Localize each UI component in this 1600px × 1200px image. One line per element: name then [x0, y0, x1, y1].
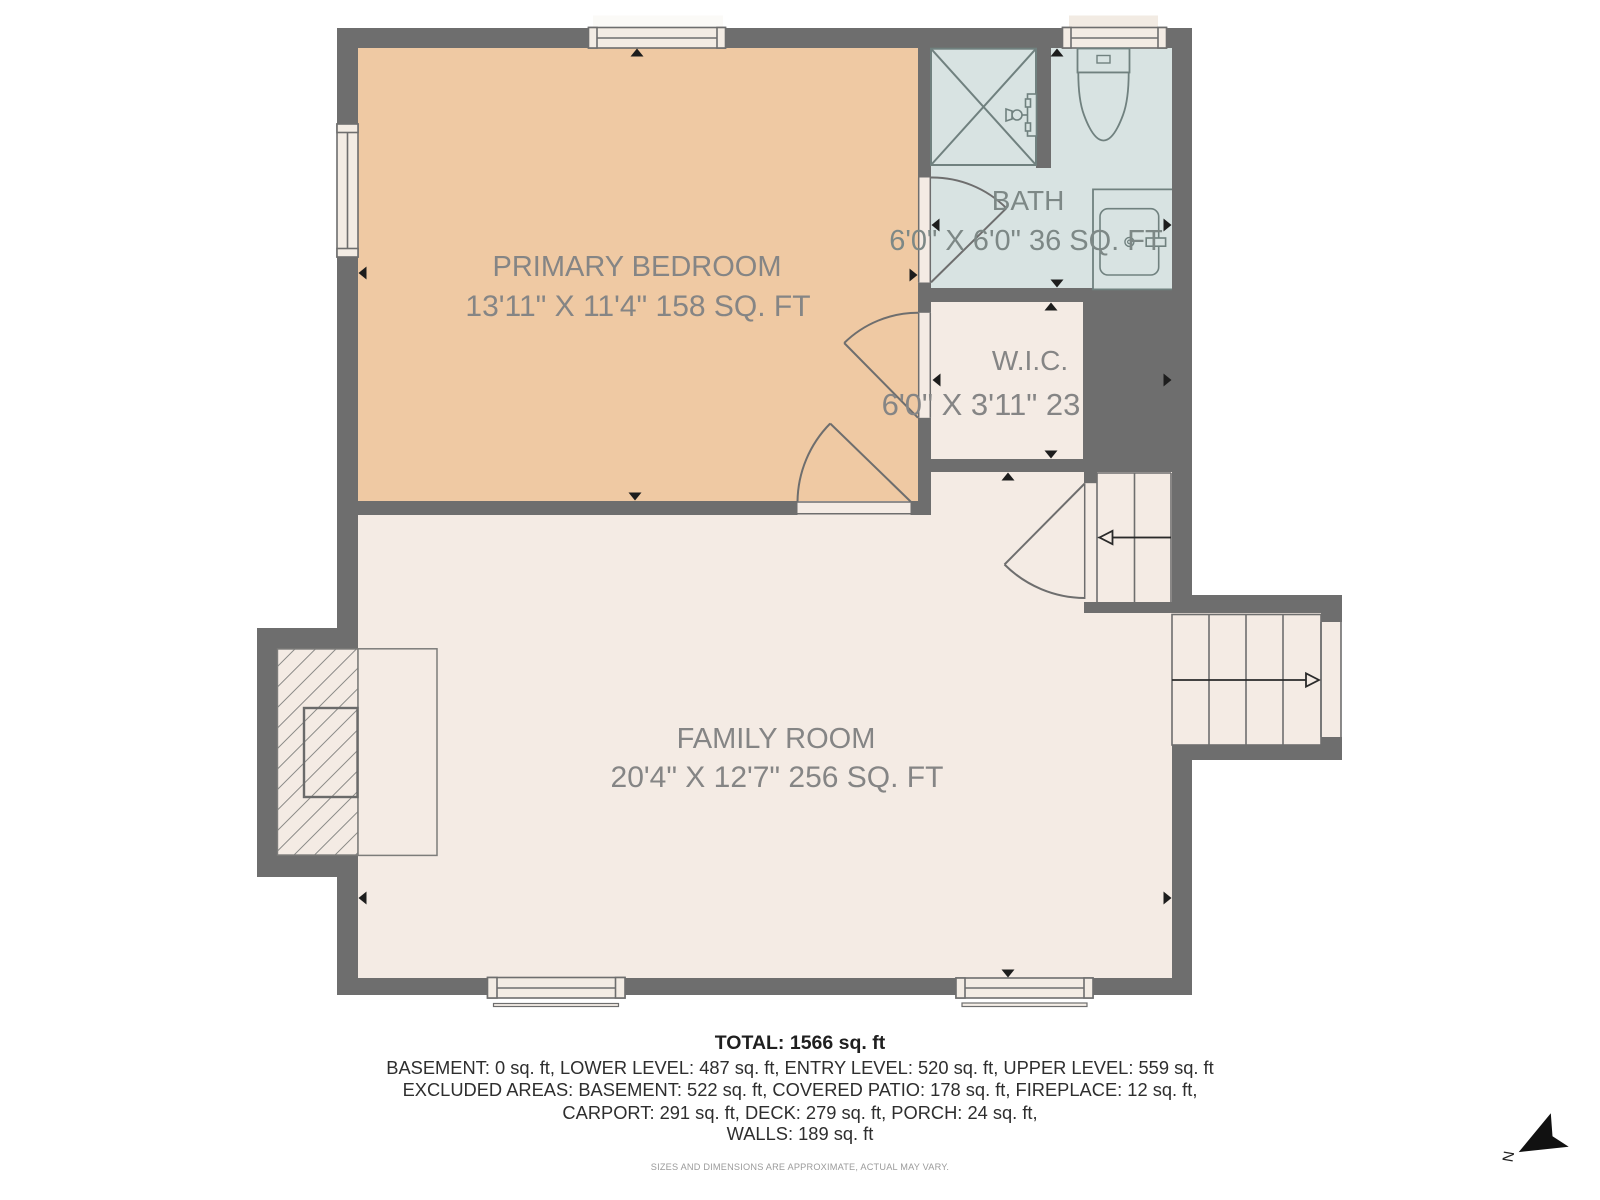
- svg-text:20'4" X 12'7" 256 SQ. FT: 20'4" X 12'7" 256 SQ. FT: [611, 761, 944, 794]
- svg-text:6'0" X 6'0" 36 SQ. FT: 6'0" X 6'0" 36 SQ. FT: [889, 225, 1163, 257]
- svg-text:EXCLUDED AREAS: BASEMENT: 522: EXCLUDED AREAS: BASEMENT: 522 sq. ft, CO…: [403, 1079, 1198, 1100]
- svg-text:TOTAL: 1566 sq. ft: TOTAL: 1566 sq. ft: [715, 1032, 886, 1054]
- svg-text:BATH: BATH: [992, 185, 1065, 216]
- svg-text:FAMILY ROOM: FAMILY ROOM: [677, 723, 876, 755]
- svg-text:PRIMARY BEDROOM: PRIMARY BEDROOM: [493, 251, 782, 283]
- svg-text:CARPORT: 291 sq. ft, DECK: 279: CARPORT: 291 sq. ft, DECK: 279 sq. ft, P…: [562, 1102, 1037, 1123]
- svg-text:13'11" X 11'4" 158 SQ. FT: 13'11" X 11'4" 158 SQ. FT: [465, 290, 810, 323]
- svg-text:W.I.C.: W.I.C.: [992, 345, 1068, 376]
- svg-text:WALLS: 189 sq. ft: WALLS: 189 sq. ft: [727, 1123, 874, 1144]
- svg-text:BASEMENT: 0 sq. ft, LOWER LEVE: BASEMENT: 0 sq. ft, LOWER LEVEL: 487 sq.…: [386, 1057, 1213, 1078]
- svg-text:SIZES AND DIMENSIONS ARE APPRO: SIZES AND DIMENSIONS ARE APPROXIMATE, AC…: [651, 1162, 949, 1172]
- svg-text:6'0" X 3'11" 23: 6'0" X 3'11" 23: [882, 387, 1081, 422]
